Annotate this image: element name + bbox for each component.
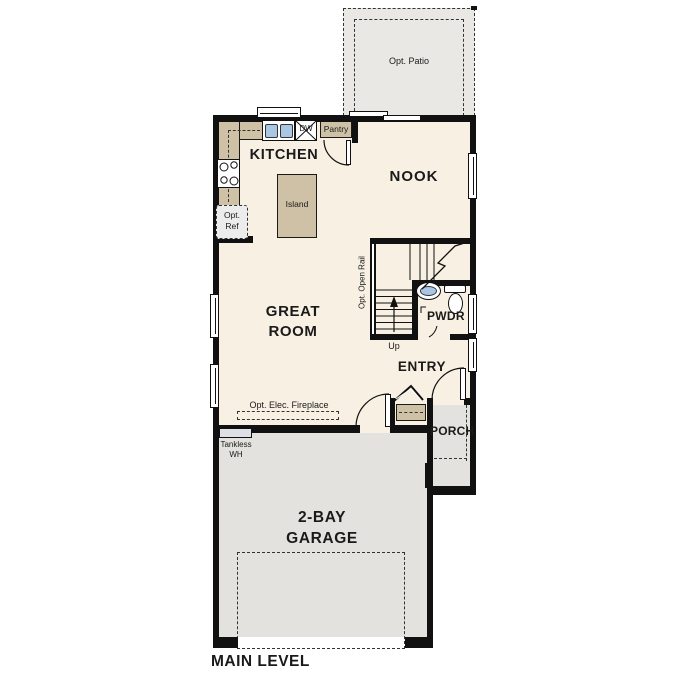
wall-garage-bottom-left [213, 637, 238, 648]
window-greatroom-1 [210, 294, 219, 338]
porch-edge-dashed-bottom [434, 458, 467, 459]
pwdr-sink-basin [420, 286, 437, 296]
garage-label: 2-BAY GARAGE [252, 507, 392, 549]
toilet-tank [444, 285, 466, 293]
wall-porch-bottom [428, 486, 476, 495]
up-label: Up [380, 341, 408, 351]
kitchen-label: KITCHEN [224, 147, 344, 163]
nook-label: NOOK [364, 168, 464, 185]
patio-outline-inner [354, 19, 464, 116]
main-level-title: MAIN LEVEL [211, 653, 310, 671]
wall-porch-right [470, 405, 476, 495]
pwdr-label: PWDR [427, 309, 465, 323]
wall-stair-bottom [370, 334, 418, 340]
porch-floor-lower [430, 463, 472, 486]
garage-door-leaf [385, 394, 391, 427]
patio-corner-tick [471, 6, 477, 10]
pantry-label: Pantry [320, 124, 352, 134]
dishwasher-label: DW [295, 124, 317, 133]
sliding-door-panel-2 [383, 115, 421, 121]
fireplace-outline [237, 411, 339, 420]
window-greatroom-2 [210, 364, 219, 408]
sink-basin-left [265, 124, 278, 138]
range [217, 159, 240, 188]
window-kitchen [257, 107, 301, 118]
tankless-wh-label: Tankless WH [206, 440, 266, 460]
wall-stair-top [370, 238, 476, 244]
wall-garage-left [213, 433, 219, 648]
great-room-label: GREAT ROOM [233, 302, 353, 342]
wall-porch-left [425, 463, 432, 488]
patio-label: Opt. Patio [359, 56, 459, 66]
wall-pantry-stub [352, 115, 358, 143]
wall-top [213, 115, 476, 122]
open-rail-label: Opt. Open Rail [358, 238, 367, 328]
window-pwdr [468, 294, 477, 334]
window-nook [468, 153, 477, 199]
porch-label: PORCH [430, 424, 472, 438]
floor-plan: Opt. Patio KITCHEN Pantry DW Island Opt.… [0, 0, 687, 687]
water-heater [219, 428, 252, 438]
island-label: Island [277, 199, 317, 209]
window-entry [468, 338, 477, 372]
entry-closet-shelf [396, 404, 426, 421]
wall-garage-bottom-right [405, 637, 433, 648]
garage-door-outline [237, 552, 405, 649]
stair-rail-inner-line [372, 244, 374, 336]
pantry-door-leaf [346, 140, 351, 165]
upper-cabinets-dashed-h [228, 130, 260, 131]
sink-basin-right [280, 124, 293, 138]
opt-ref-label: Opt. Ref [216, 210, 248, 232]
entry-label: ENTRY [382, 359, 462, 374]
fireplace-label: Opt. Elec. Fireplace [229, 400, 349, 410]
